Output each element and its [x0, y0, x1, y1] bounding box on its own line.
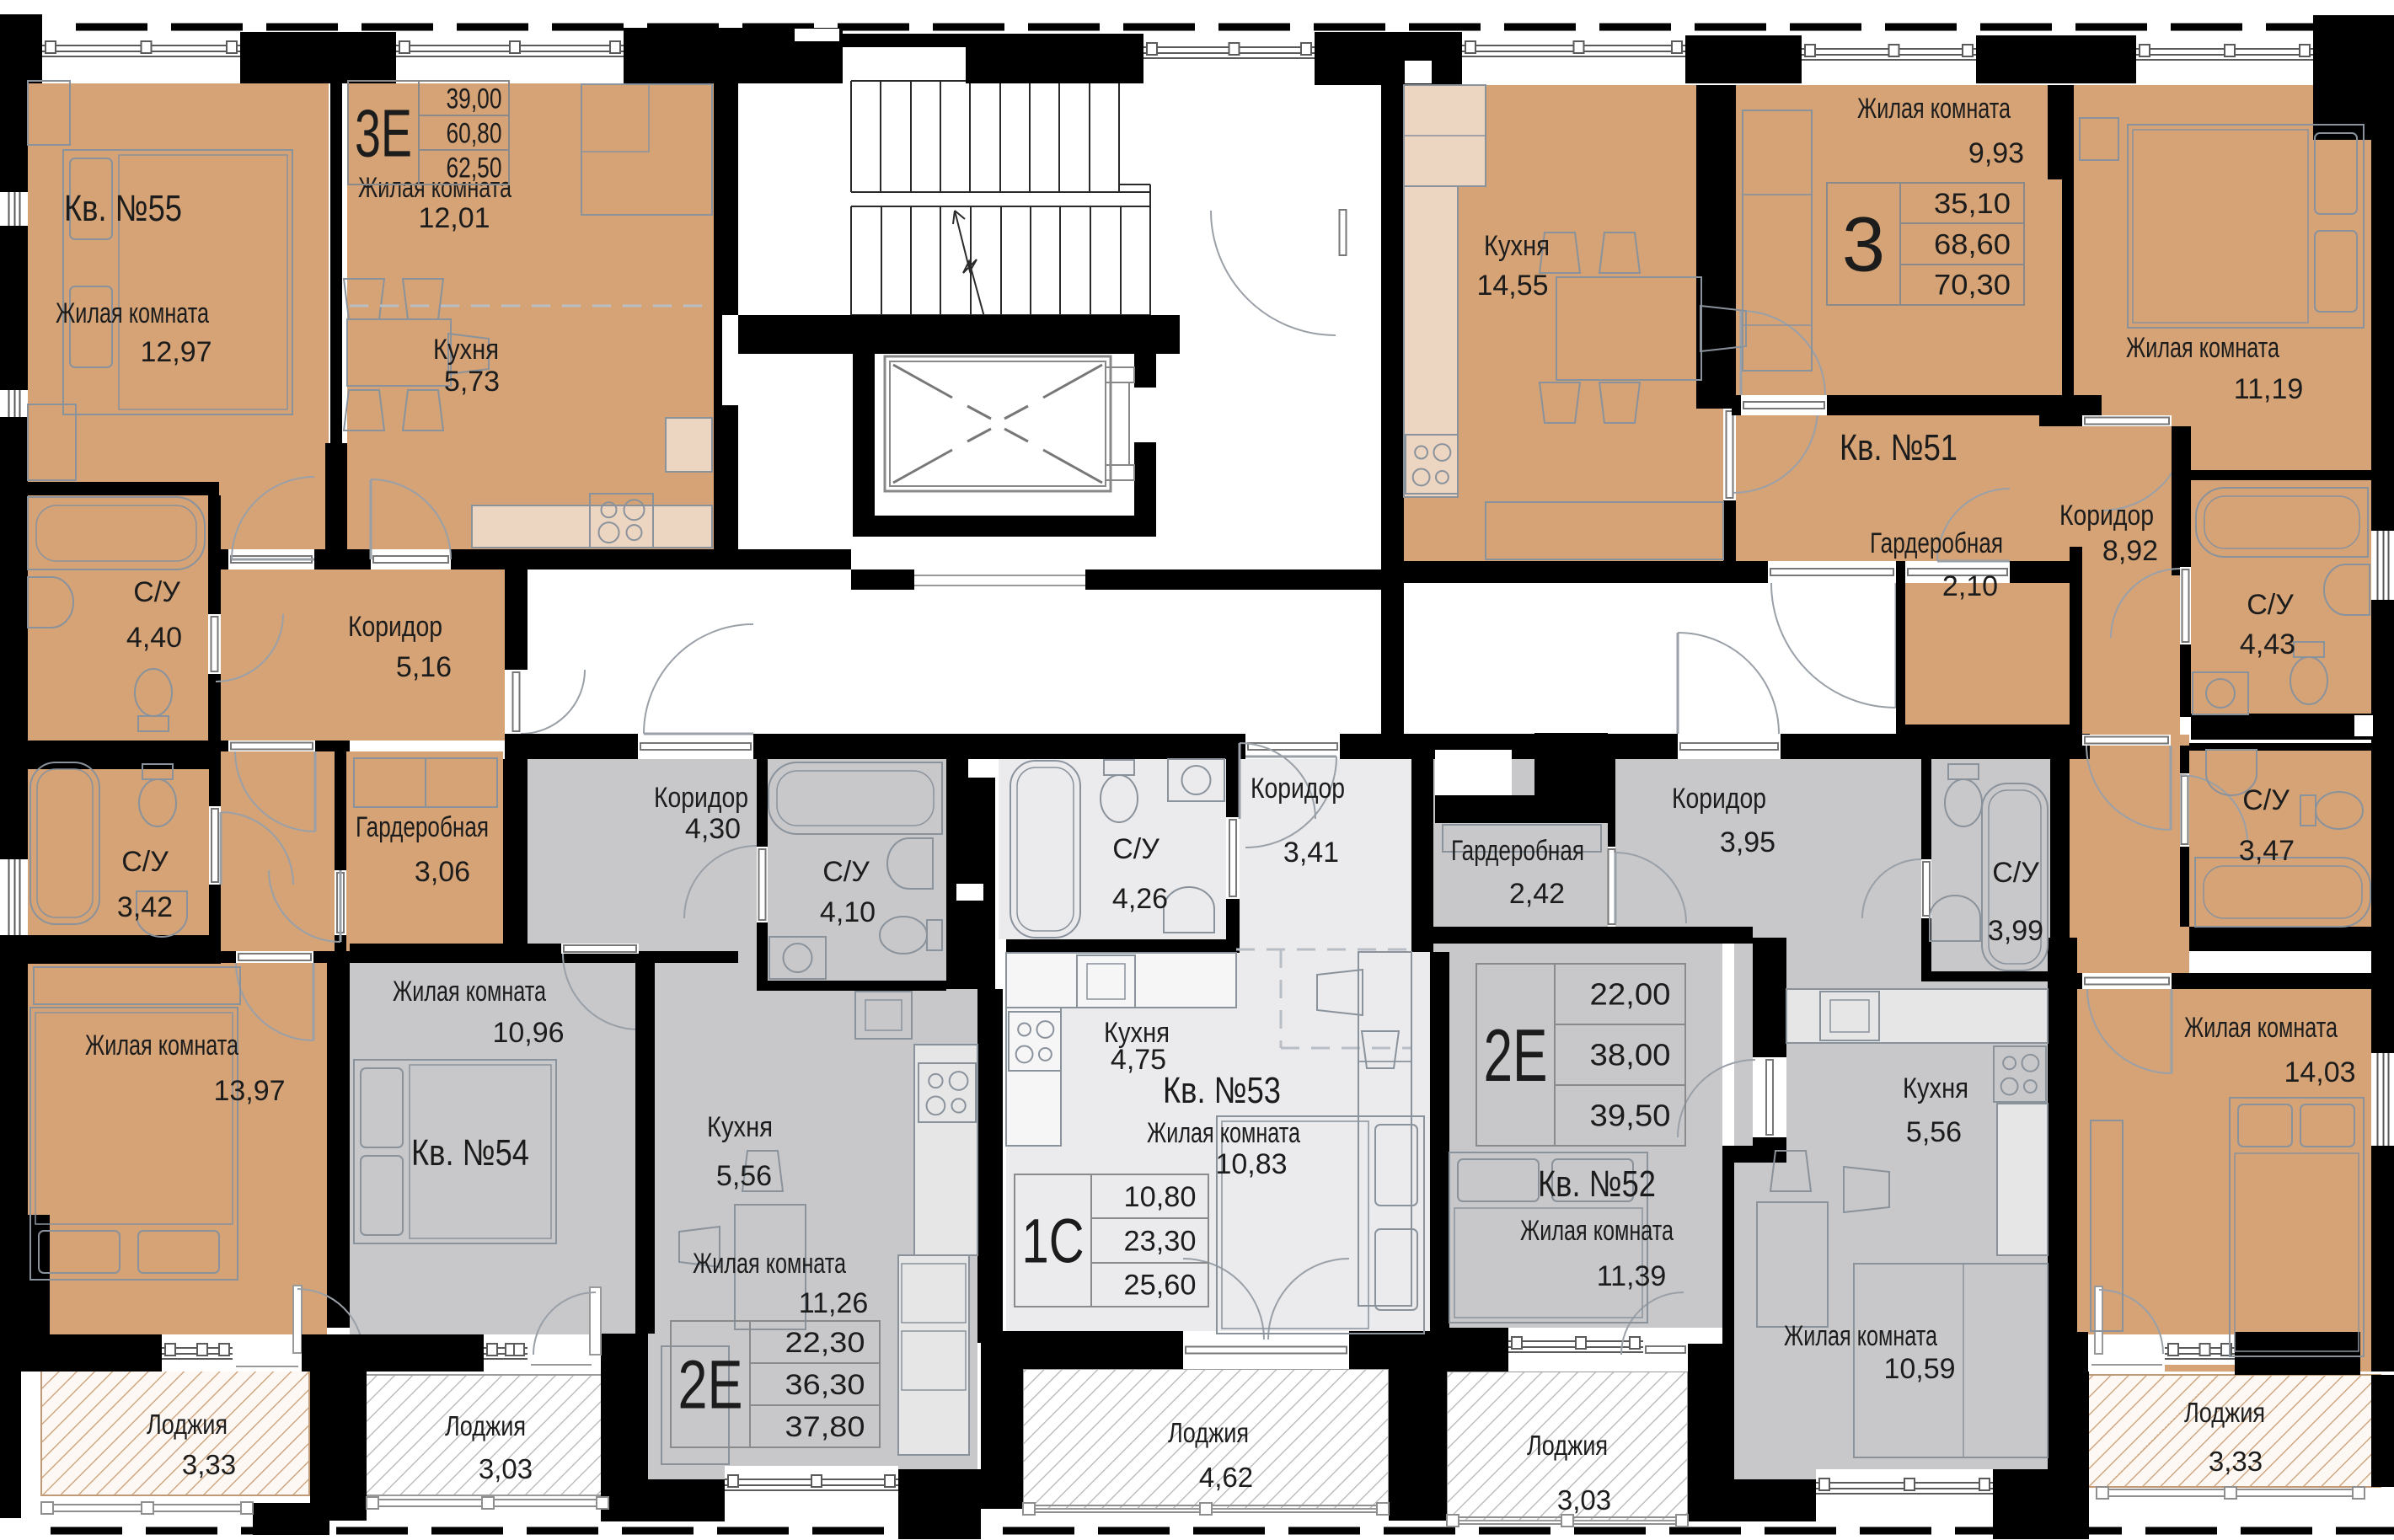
svg-text:10,59: 10,59 — [1883, 1353, 1955, 1385]
svg-text:3,06: 3,06 — [415, 856, 470, 888]
svg-text:70,30: 70,30 — [1934, 270, 2011, 302]
svg-text:Коридор: Коридор — [2059, 500, 2154, 532]
svg-text:3: 3 — [1842, 202, 1885, 288]
svg-text:2Е: 2Е — [1484, 1013, 1548, 1097]
svg-text:С/У: С/У — [1112, 833, 1160, 865]
svg-text:3,41: 3,41 — [1283, 837, 1339, 869]
svg-text:Жилая комната: Жилая комната — [1520, 1215, 1674, 1247]
svg-text:3,33: 3,33 — [2209, 1446, 2263, 1477]
svg-text:Жилая комната: Жилая комната — [1857, 93, 2011, 125]
svg-text:11,39: 11,39 — [1597, 1260, 1667, 1292]
svg-text:Жилая комната: Жилая комната — [56, 297, 209, 329]
svg-text:Гардеробная: Гардеробная — [356, 811, 489, 843]
svg-text:9,93: 9,93 — [1968, 137, 2024, 169]
svg-text:12,01: 12,01 — [418, 202, 490, 234]
svg-text:68,60: 68,60 — [1934, 228, 2011, 260]
svg-text:Жилая комната: Жилая комната — [1147, 1117, 1300, 1149]
svg-text:Коридор: Коридор — [654, 782, 748, 814]
svg-text:39,50: 39,50 — [1590, 1099, 1671, 1133]
svg-text:3,99: 3,99 — [1988, 915, 2043, 947]
svg-text:25,60: 25,60 — [1124, 1270, 1197, 1302]
svg-text:39,00: 39,00 — [447, 83, 502, 115]
svg-text:Кухня: Кухня — [1484, 230, 1550, 262]
svg-text:60,80: 60,80 — [447, 117, 502, 149]
svg-text:4,40: 4,40 — [126, 622, 182, 654]
svg-text:38,00: 38,00 — [1590, 1038, 1671, 1072]
svg-text:10,96: 10,96 — [492, 1017, 564, 1049]
svg-text:Коридор: Коридор — [348, 611, 442, 643]
svg-text:Кв. №51: Кв. №51 — [1840, 427, 1958, 468]
svg-text:Гардеробная: Гардеробная — [1451, 835, 1584, 867]
svg-text:22,00: 22,00 — [1590, 977, 1671, 1012]
svg-text:3,03: 3,03 — [479, 1453, 533, 1484]
svg-text:Кухня: Кухня — [433, 334, 499, 366]
svg-text:8,92: 8,92 — [2102, 535, 2158, 567]
svg-text:С/У: С/У — [1992, 857, 2039, 889]
svg-text:3,42: 3,42 — [117, 891, 173, 923]
svg-text:Гардеробная: Гардеробная — [1870, 527, 2003, 559]
svg-text:4,10: 4,10 — [820, 896, 876, 928]
svg-text:62,50: 62,50 — [447, 152, 502, 184]
svg-text:Лоджия: Лоджия — [2184, 1397, 2265, 1428]
svg-text:2,42: 2,42 — [1509, 878, 1565, 910]
svg-text:Жилая комната: Жилая комната — [393, 976, 546, 1008]
svg-text:4,43: 4,43 — [2240, 628, 2295, 660]
svg-text:Жилая комната: Жилая комната — [85, 1029, 238, 1061]
svg-text:13,97: 13,97 — [213, 1075, 285, 1107]
svg-text:12,97: 12,97 — [140, 336, 212, 368]
svg-text:35,10: 35,10 — [1934, 188, 2011, 220]
svg-text:23,30: 23,30 — [1124, 1225, 1197, 1257]
svg-text:Кв. №53: Кв. №53 — [1163, 1070, 1281, 1111]
svg-text:5,56: 5,56 — [1906, 1116, 1962, 1148]
svg-text:5,73: 5,73 — [444, 366, 500, 398]
svg-text:Кв. №55: Кв. №55 — [64, 188, 182, 229]
svg-text:С/У: С/У — [2242, 784, 2290, 816]
svg-text:Кухня: Кухня — [707, 1111, 773, 1143]
svg-text:10,80: 10,80 — [1124, 1181, 1197, 1213]
svg-text:Лоджия: Лоджия — [1527, 1430, 1608, 1461]
svg-text:Жилая комната: Жилая комната — [2184, 1012, 2338, 1044]
svg-text:Коридор: Коридор — [1672, 783, 1766, 815]
svg-text:1С: 1С — [1022, 1206, 1085, 1275]
svg-text:3,33: 3,33 — [182, 1449, 236, 1480]
svg-text:Кухня: Кухня — [1903, 1072, 1968, 1104]
svg-text:Коридор: Коридор — [1251, 773, 1345, 805]
svg-text:10,83: 10,83 — [1215, 1148, 1287, 1180]
svg-text:14,55: 14,55 — [1476, 270, 1548, 302]
svg-text:4,26: 4,26 — [1112, 883, 1168, 915]
svg-text:37,80: 37,80 — [785, 1411, 865, 1443]
svg-text:Кв. №54: Кв. №54 — [411, 1132, 529, 1174]
svg-text:14,03: 14,03 — [2284, 1056, 2355, 1088]
svg-text:Жилая комната: Жилая комната — [1784, 1320, 1937, 1352]
svg-text:11,26: 11,26 — [799, 1287, 869, 1319]
svg-text:Лоджия: Лоджия — [445, 1410, 526, 1441]
svg-text:2,10: 2,10 — [1942, 570, 1998, 602]
svg-text:Жилая комната: Жилая комната — [2126, 332, 2279, 364]
svg-text:С/У: С/У — [121, 846, 169, 878]
svg-text:5,16: 5,16 — [396, 651, 452, 683]
svg-text:Кв. №52: Кв. №52 — [1538, 1163, 1656, 1205]
svg-text:С/У: С/У — [822, 856, 870, 888]
svg-text:22,30: 22,30 — [785, 1327, 865, 1359]
svg-text:3,03: 3,03 — [1557, 1484, 1611, 1516]
svg-text:3,47: 3,47 — [2239, 835, 2295, 867]
svg-text:5,56: 5,56 — [716, 1160, 772, 1192]
svg-text:Лоджия: Лоджия — [147, 1409, 228, 1440]
svg-text:Лоджия: Лоджия — [1168, 1417, 1249, 1448]
svg-text:3,95: 3,95 — [1720, 826, 1775, 858]
svg-text:4,62: 4,62 — [1199, 1462, 1253, 1493]
svg-text:Жилая комната: Жилая комната — [693, 1248, 846, 1280]
svg-text:11,19: 11,19 — [2234, 373, 2304, 405]
svg-text:С/У: С/У — [2247, 589, 2294, 621]
svg-text:4,30: 4,30 — [685, 813, 741, 845]
svg-text:2Е: 2Е — [678, 1347, 743, 1424]
svg-text:36,30: 36,30 — [785, 1369, 865, 1401]
svg-text:3Е: 3Е — [355, 96, 412, 171]
svg-text:С/У: С/У — [133, 576, 180, 608]
svg-text:4,75: 4,75 — [1111, 1044, 1166, 1076]
